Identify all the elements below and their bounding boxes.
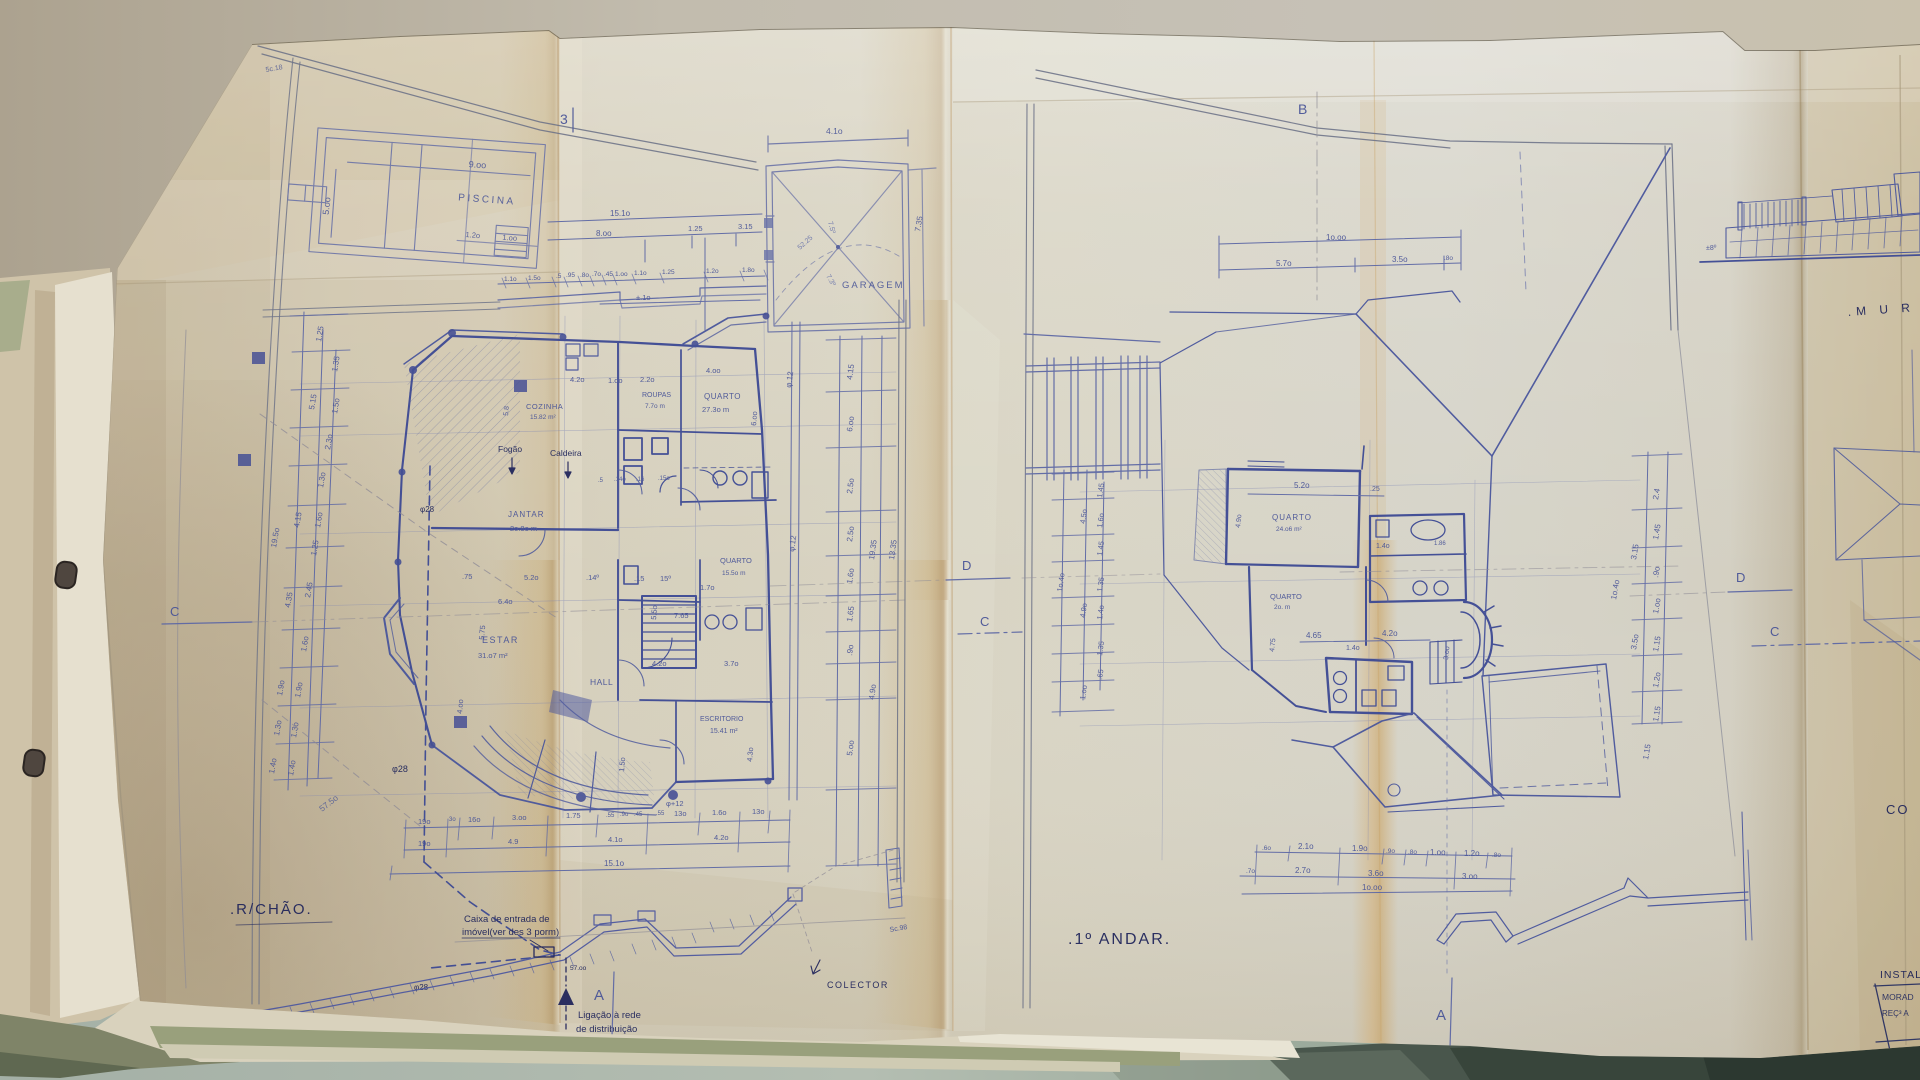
svg-text:1.6o: 1.6o: [712, 808, 727, 817]
svg-text:.8o: .8o: [1492, 852, 1501, 859]
svg-text:1.4o: 1.4o: [1376, 543, 1390, 550]
svg-text:2.1o: 2.1o: [1298, 842, 1314, 851]
svg-text:C: C: [1770, 624, 1779, 639]
svg-text:.45: .45: [634, 812, 643, 818]
svg-text:JANTAR: JANTAR: [508, 510, 545, 519]
svg-text:13o: 13o: [674, 809, 687, 818]
svg-text:15.82 m²: 15.82 m²: [530, 414, 556, 421]
svg-text:ESTAR: ESTAR: [482, 635, 519, 645]
svg-text:Caixa de entrada de: Caixa de entrada de: [464, 914, 550, 925]
svg-text:.7o: .7o: [1246, 868, 1255, 875]
svg-text:MORAD: MORAD: [1882, 992, 1914, 1002]
svg-text:6.oo: 6.oo: [749, 411, 759, 426]
svg-text:2.2o: 2.2o: [640, 375, 655, 384]
svg-text:1.25: 1.25: [688, 224, 703, 233]
svg-text:2o. m: 2o. m: [1274, 604, 1290, 611]
svg-text:D: D: [962, 558, 971, 573]
svg-text:.45: .45: [604, 271, 613, 278]
svg-text:7.7o m: 7.7o m: [645, 403, 665, 410]
svg-text:REÇ³ A: REÇ³ A: [1882, 1009, 1909, 1018]
svg-text:.95: .95: [566, 272, 575, 279]
svg-text:5.2o: 5.2o: [524, 573, 539, 582]
svg-text:3.7o: 3.7o: [724, 659, 739, 668]
svg-text:5.75: 5.75: [477, 625, 487, 640]
svg-text:.25: .25: [1370, 486, 1380, 493]
svg-text:Fogão: Fogão: [498, 444, 522, 454]
svg-text:5.oo: 5.oo: [321, 197, 333, 216]
svg-text:5.2o: 5.2o: [1294, 481, 1310, 490]
svg-text:1.2o: 1.2o: [465, 230, 480, 240]
svg-text:5.7o: 5.7o: [1276, 259, 1292, 268]
svg-text:15.1o: 15.1o: [610, 209, 631, 218]
svg-text:Caldeira: Caldeira: [550, 448, 582, 458]
svg-text:8.oo: 8.oo: [596, 229, 612, 238]
svg-text:.55: .55: [606, 813, 615, 819]
svg-text:1.4o: 1.4o: [1346, 645, 1360, 652]
svg-text:1.oo: 1.oo: [608, 376, 623, 385]
svg-text:COZINHA: COZINHA: [526, 402, 563, 411]
svg-text:1.5o: 1.5o: [528, 275, 541, 282]
svg-text:4.oo: 4.oo: [706, 366, 721, 375]
svg-text:.8o: .8o: [1444, 255, 1453, 262]
svg-text:3.oo: 3.oo: [1443, 646, 1451, 660]
svg-text:3: 3: [560, 111, 568, 127]
svg-text:D: D: [1736, 570, 1745, 585]
svg-text:6.4o: 6.4o: [498, 597, 513, 606]
svg-text:1.1o: 1.1o: [504, 276, 517, 283]
svg-text:.9o: .9o: [845, 643, 856, 656]
svg-text:.5: .5: [598, 478, 604, 484]
svg-text:1.86: 1.86: [1434, 541, 1446, 547]
svg-text:φ28: φ28: [420, 505, 435, 514]
svg-text:HALL: HALL: [590, 677, 613, 687]
svg-text:.75: .75: [462, 572, 472, 581]
svg-text:15.41 m²: 15.41 m²: [710, 728, 738, 735]
svg-text:2o.8o m: 2o.8o m: [510, 524, 537, 533]
svg-text:3.15: 3.15: [738, 222, 753, 231]
svg-text:.8o: .8o: [580, 272, 589, 279]
svg-text:QUARTO: QUARTO: [1272, 513, 1312, 522]
svg-text:φ28: φ28: [392, 764, 408, 774]
svg-text:4.2o: 4.2o: [1382, 629, 1398, 638]
svg-text:3.5o: 3.5o: [1392, 255, 1408, 264]
svg-text:3.oo: 3.oo: [1462, 872, 1478, 881]
svg-text:1.oo: 1.oo: [615, 271, 628, 278]
svg-text:57.oo: 57.oo: [570, 965, 587, 972]
svg-text:4.3o: 4.3o: [745, 747, 755, 762]
svg-text:1.1o: 1.1o: [634, 270, 647, 277]
svg-text:16o: 16o: [468, 815, 481, 824]
svg-text:.14º: .14º: [586, 573, 599, 582]
svg-text:GARAGEM: GARAGEM: [842, 280, 905, 291]
svg-text:5.8: 5.8: [503, 406, 511, 416]
svg-text:4.65: 4.65: [1306, 631, 1322, 640]
svg-text:.7o: .7o: [592, 271, 601, 278]
svg-text:3.oo: 3.oo: [512, 813, 527, 822]
svg-text:1.9o: 1.9o: [1352, 844, 1368, 853]
svg-text:.9o: .9o: [1386, 848, 1395, 855]
svg-text:31.o7 m²: 31.o7 m²: [478, 651, 508, 660]
svg-text:.1º ANDAR.: .1º ANDAR.: [1068, 931, 1171, 948]
svg-text:.14o: .14o: [614, 477, 626, 483]
svg-text:3o: 3o: [449, 817, 456, 823]
svg-text:2.7o: 2.7o: [1295, 866, 1311, 875]
svg-text:QUARTO: QUARTO: [720, 556, 752, 565]
svg-text:1o.oo: 1o.oo: [1362, 883, 1383, 892]
svg-text:Ligação à rede: Ligação à rede: [578, 1010, 641, 1021]
svg-text:INSTAL: INSTAL: [1880, 969, 1920, 981]
svg-text:.15: .15: [634, 574, 644, 583]
svg-text:15.5o m: 15.5o m: [722, 570, 746, 577]
svg-text:1.5o: 1.5o: [617, 757, 627, 772]
svg-text:COLECTOR: COLECTOR: [827, 980, 889, 990]
svg-text:.15o: .15o: [658, 476, 670, 482]
svg-text:1.2o: 1.2o: [1464, 849, 1480, 858]
svg-text:5.5o: 5.5o: [649, 605, 659, 620]
svg-text:φ+12: φ+12: [666, 799, 684, 808]
svg-text:4.9: 4.9: [508, 837, 518, 846]
svg-text:QUARTO: QUARTO: [1270, 592, 1302, 601]
svg-text:4.9o: 4.9o: [1235, 514, 1243, 528]
svg-text:7.65: 7.65: [674, 611, 689, 620]
svg-text:.55: .55: [656, 811, 665, 817]
svg-text:4.2o: 4.2o: [652, 659, 667, 668]
svg-text:.R/CHÃO.: .R/CHÃO.: [230, 901, 313, 918]
svg-text:.5: .5: [556, 273, 562, 280]
svg-text:15.1o: 15.1o: [604, 859, 625, 868]
svg-text:24.o6 m²: 24.o6 m²: [1276, 526, 1302, 533]
svg-text:1.oo: 1.oo: [1430, 848, 1446, 857]
svg-text:.65: .65: [1095, 669, 1105, 681]
svg-text:4.75: 4.75: [1269, 638, 1277, 652]
svg-text:CO: CO: [1886, 802, 1910, 817]
svg-text:C: C: [980, 614, 989, 629]
svg-text:4.oo: 4.oo: [455, 699, 465, 714]
svg-text:A: A: [1436, 1007, 1446, 1024]
svg-text:ESCRITORIO: ESCRITORIO: [700, 716, 744, 723]
svg-text:1.8o: 1.8o: [742, 267, 755, 274]
svg-text:ROUPAS: ROUPAS: [642, 392, 671, 399]
svg-text:.9o: .9o: [620, 812, 629, 818]
svg-text:1.25: 1.25: [662, 269, 675, 276]
svg-text:27.3o m: 27.3o m: [702, 405, 729, 414]
svg-text:A: A: [594, 987, 604, 1004]
svg-text:imóvel(ver des 3 porm): imóvel(ver des 3 porm): [462, 927, 559, 938]
svg-text:4.1o: 4.1o: [608, 835, 623, 844]
svg-text:1o.oo: 1o.oo: [1326, 233, 1347, 242]
svg-text:1.75: 1.75: [566, 811, 581, 820]
svg-text:3.6o: 3.6o: [1368, 869, 1384, 878]
svg-text:1.7o: 1.7o: [700, 583, 715, 592]
svg-text:±8º: ±8º: [1706, 245, 1717, 252]
svg-text:C: C: [170, 604, 179, 619]
svg-text:1.oo: 1.oo: [502, 233, 517, 243]
svg-text:±.1o: ±.1o: [636, 293, 651, 302]
svg-text:B: B: [1298, 101, 1307, 117]
svg-text:1.2o: 1.2o: [706, 268, 719, 275]
svg-text:.6o: .6o: [1262, 845, 1271, 852]
svg-text:4.2o: 4.2o: [570, 375, 585, 384]
svg-text:QUARTO: QUARTO: [704, 392, 741, 401]
svg-text:9.oo: 9.oo: [468, 159, 486, 170]
svg-text:13o: 13o: [752, 807, 765, 816]
svg-text:4.2o: 4.2o: [714, 833, 729, 842]
svg-text:4.1o: 4.1o: [826, 126, 843, 136]
svg-text:15º: 15º: [660, 574, 671, 583]
svg-text:.8o: .8o: [1408, 849, 1417, 856]
